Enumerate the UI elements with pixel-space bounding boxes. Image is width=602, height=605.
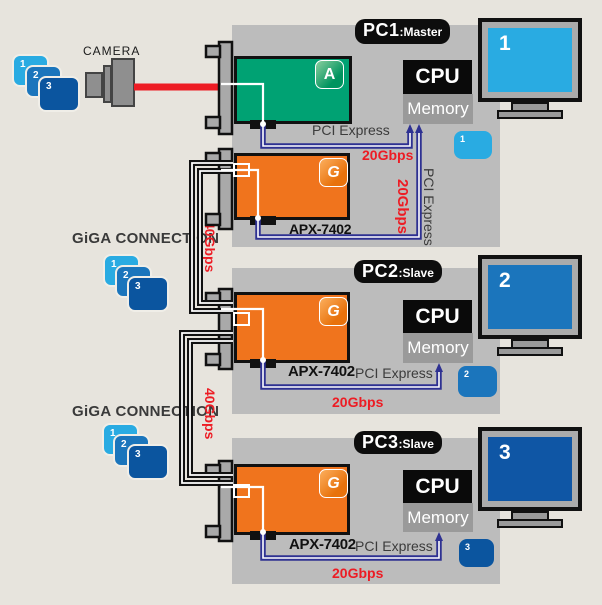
monitor-number: 1 xyxy=(499,32,511,55)
bandwidth-40gbps-label-2: 40Gbps xyxy=(202,388,218,439)
pc3-badge: PC3:Slave xyxy=(354,431,442,454)
pc1-memory: Memory xyxy=(403,94,473,124)
giga-connection-label-2: GiGA CONNECTION xyxy=(72,403,219,420)
pc-role: Slave xyxy=(403,266,434,280)
pci-express-label: PCI Express xyxy=(355,365,433,381)
monitor-base xyxy=(497,519,563,528)
board-model-label: APX-7402 xyxy=(289,536,356,553)
source-object-3: 3 xyxy=(38,76,80,112)
pc-name: PC2 xyxy=(362,261,399,282)
pci-express-label: PCI Express xyxy=(355,538,433,554)
pc-name: PC3 xyxy=(362,432,399,453)
monitor-base xyxy=(497,347,563,356)
bandwidth-20gbps-label: 20Gbps xyxy=(332,394,383,410)
bracket-pc2-apx-board xyxy=(206,289,232,369)
bracket-pc1-apx-board xyxy=(206,149,232,229)
camera-body xyxy=(111,58,135,107)
monitor-screen: 2 xyxy=(488,265,572,329)
pc-name: PC1 xyxy=(363,20,400,41)
monitor-pc2: 2 xyxy=(478,255,582,356)
pc1-cpu: CPU xyxy=(403,60,472,94)
source-object-number: 3 xyxy=(46,81,52,92)
pc3-cpu: CPU xyxy=(403,470,472,503)
monitor-number: 3 xyxy=(499,441,511,464)
giga-object-number: 3 xyxy=(135,281,141,292)
pc-role: Slave xyxy=(403,437,434,451)
giga-object-number: 2 xyxy=(121,439,127,450)
apx-board-logo-icon: G xyxy=(319,297,348,326)
monitor-pc3: 3 xyxy=(478,427,582,528)
monitor-pc1: 1 xyxy=(478,18,582,119)
apx-board-logo-icon: G xyxy=(319,158,348,187)
giga2-object-3: 3 xyxy=(127,444,169,480)
source-object-number: 2 xyxy=(33,70,39,81)
camera-lens xyxy=(85,72,103,98)
board-model-label: APX-7402 xyxy=(289,221,351,237)
camera-label: CAMERA xyxy=(83,44,140,58)
bracket-pc3-apx-board xyxy=(206,461,232,541)
board-model-label: APX-7402 xyxy=(288,363,355,380)
bandwidth-20gbps-label: 20Gbps xyxy=(332,565,383,581)
giga-object-number: 3 xyxy=(135,449,141,460)
pc1-badge: PC1:Master xyxy=(355,19,450,44)
bandwidth-20gbps-label-vertical: 20Gbps xyxy=(394,179,411,234)
monitor-frame: 2 xyxy=(478,255,582,339)
pc3-memory: Memory xyxy=(403,503,473,532)
pc2-cpu: CPU xyxy=(403,300,472,333)
bandwidth-20gbps-label: 20Gbps xyxy=(362,147,413,163)
pc2-stream-tag: 2 xyxy=(458,366,497,397)
tag-number: 1 xyxy=(460,134,465,144)
tag-number: 3 xyxy=(465,542,470,552)
monitor-base xyxy=(497,110,563,119)
bandwidth-40gbps-label-1: 40Gbps xyxy=(202,221,218,272)
pc1-stream-tag: 1 xyxy=(454,131,492,159)
capture-board-logo-icon: A xyxy=(315,60,344,89)
bracket-pc1-green-board xyxy=(206,42,232,134)
diagram-stage: 1 2 3 CAMERA GiGA CONNECTION 1 2 3 40Gbp… xyxy=(0,0,602,605)
pci-express-label-vertical: PCI Express xyxy=(421,168,437,246)
monitor-screen: 3 xyxy=(488,437,572,501)
tag-number: 2 xyxy=(464,369,469,379)
monitor-number: 2 xyxy=(499,269,511,292)
monitor-screen: 1 xyxy=(488,28,572,92)
pc3-stream-tag: 3 xyxy=(459,539,494,567)
monitor-frame: 1 xyxy=(478,18,582,102)
pci-express-label: PCI Express xyxy=(312,122,390,138)
giga1-object-3: 3 xyxy=(127,276,169,312)
pc2-badge: PC2:Slave xyxy=(354,260,442,283)
giga-connection-label-1: GiGA CONNECTION xyxy=(72,230,219,247)
apx-board-logo-icon: G xyxy=(319,469,348,498)
source-object-number: 1 xyxy=(20,59,26,70)
pc-role: Master xyxy=(404,25,443,39)
pc2-memory: Memory xyxy=(403,333,473,363)
monitor-frame: 3 xyxy=(478,427,582,511)
